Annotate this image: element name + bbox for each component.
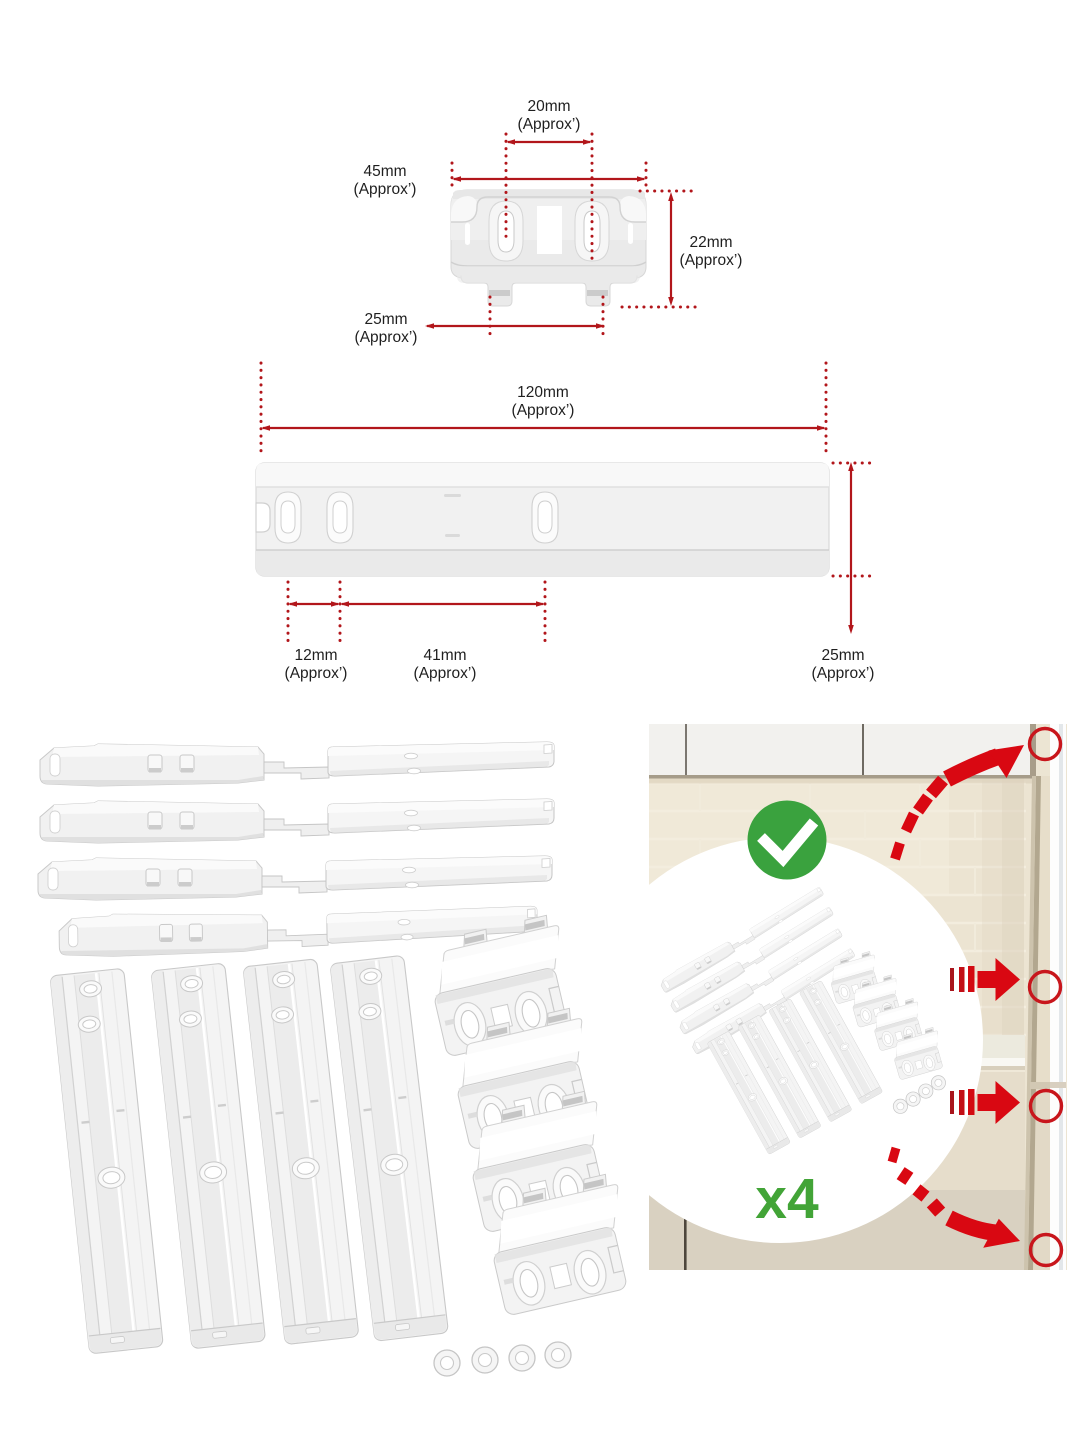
svg-text:(Approx’): (Approx’)	[512, 402, 575, 419]
svg-text:(Approx’): (Approx’)	[680, 252, 743, 269]
svg-text:12mm: 12mm	[294, 647, 337, 664]
svg-text:120mm: 120mm	[517, 384, 569, 401]
svg-text:20mm: 20mm	[527, 98, 570, 115]
svg-text:x4: x4	[755, 1167, 819, 1231]
svg-text:(Approx’): (Approx’)	[414, 665, 477, 682]
svg-text:(Approx’): (Approx’)	[354, 181, 417, 198]
svg-text:25mm: 25mm	[821, 647, 864, 664]
svg-text:(Approx’): (Approx’)	[812, 665, 875, 682]
svg-text:(Approx’): (Approx’)	[518, 116, 581, 133]
svg-text:45mm: 45mm	[363, 163, 406, 180]
svg-text:(Approx’): (Approx’)	[355, 329, 418, 346]
svg-text:22mm: 22mm	[689, 234, 732, 251]
svg-text:41mm: 41mm	[423, 647, 466, 664]
svg-text:25mm: 25mm	[364, 311, 407, 328]
svg-text:(Approx’): (Approx’)	[285, 665, 348, 682]
